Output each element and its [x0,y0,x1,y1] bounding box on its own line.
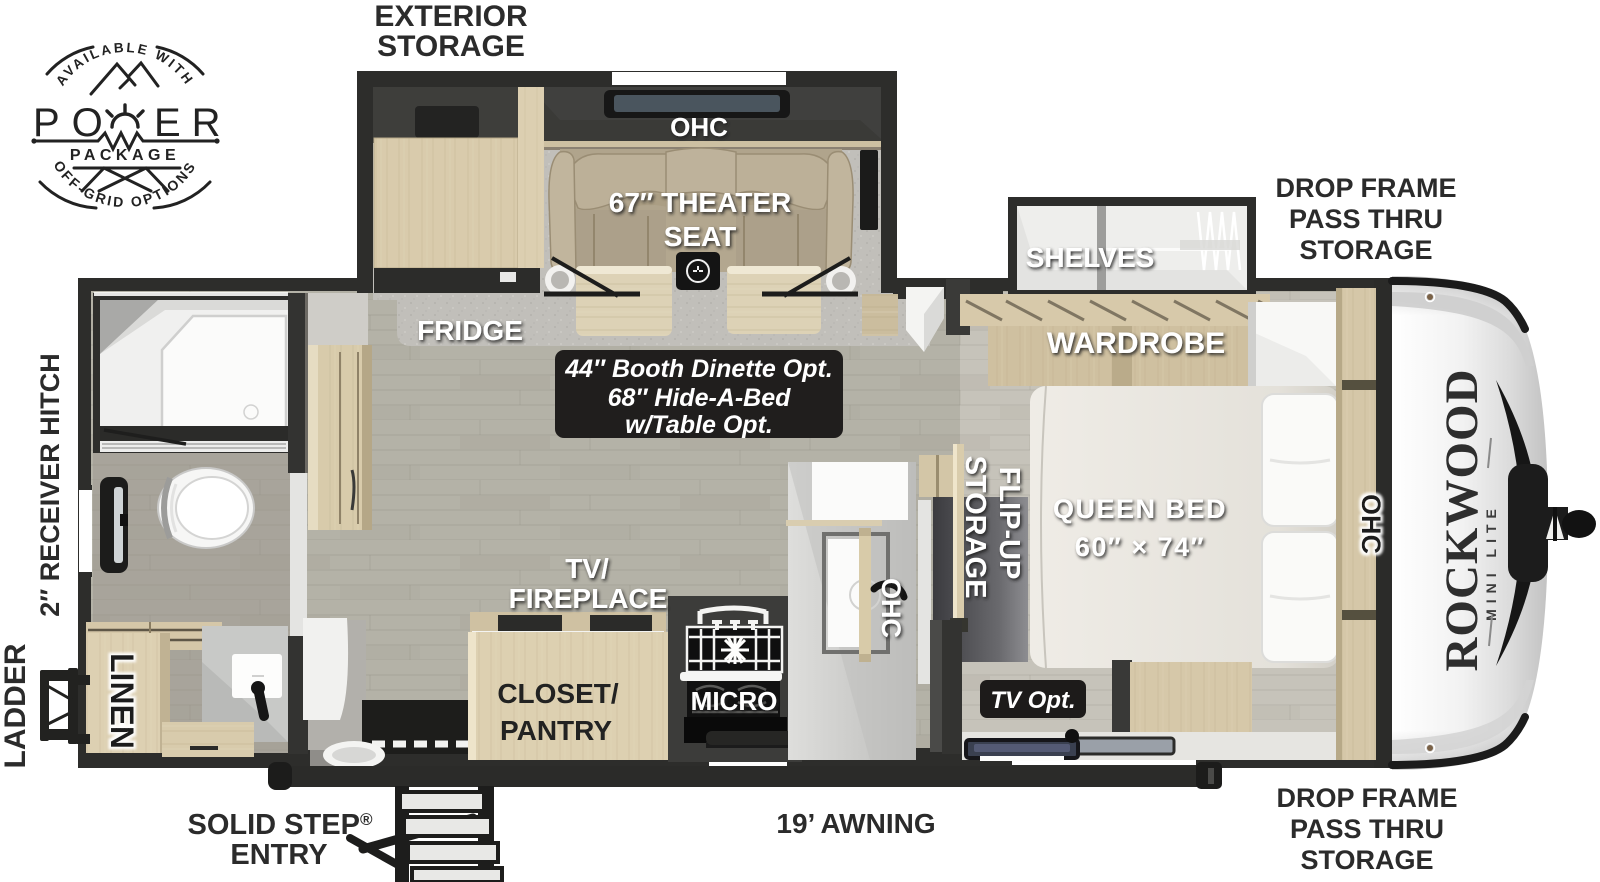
svg-text:TV/: TV/ [565,553,609,584]
svg-text:CLOSET/: CLOSET/ [497,678,619,709]
svg-text:EXTERIOR: EXTERIOR [374,0,528,33]
svg-text:MINI LITE: MINI LITE [1483,503,1499,621]
svg-text:STORAGE: STORAGE [1299,235,1432,265]
svg-text:MICRO: MICRO [691,686,778,716]
svg-text:SHELVES: SHELVES [1026,242,1155,273]
svg-text:68″ Hide-A-Bed: 68″ Hide-A-Bed [608,384,792,412]
svg-text:SEAT: SEAT [664,221,737,252]
svg-text:OHC: OHC [670,112,728,142]
svg-text:DROP FRAME: DROP FRAME [1275,173,1456,203]
svg-text:19’ AWNING: 19’ AWNING [776,808,935,839]
svg-text:QUEEN BED: QUEEN BED [1053,494,1227,524]
svg-text:2″ RECEIVER HITCH: 2″ RECEIVER HITCH [35,353,65,616]
svg-text:ENTRY: ENTRY [230,839,327,871]
svg-text:FLIP-UP: FLIP-UP [993,467,1025,580]
svg-text:STORAGE: STORAGE [377,30,525,63]
svg-text:STORAGE: STORAGE [959,456,991,599]
svg-text:WARDROBE: WARDROBE [1047,327,1225,360]
svg-text:ER: ER [154,101,232,145]
svg-text:PACKAGE: PACKAGE [70,147,180,164]
svg-text:60″ × 74″: 60″ × 74″ [1075,532,1205,562]
svg-text:44″ Booth Dinette Opt.: 44″ Booth Dinette Opt. [564,355,833,383]
svg-text:PASS THRU: PASS THRU [1290,814,1444,844]
svg-text:SOLID STEP®: SOLID STEP® [188,809,373,841]
svg-text:OHC: OHC [876,578,906,638]
svg-text:ROCKWOOD: ROCKWOOD [1436,368,1488,671]
svg-text:LINEN: LINEN [104,653,140,749]
svg-text:LADDER: LADDER [0,643,32,768]
svg-text:STORAGE: STORAGE [1300,845,1433,875]
svg-text:PANTRY: PANTRY [500,715,612,746]
svg-text:PO: PO [33,101,115,145]
svg-text:TV Opt.: TV Opt. [990,687,1075,714]
svg-text:PASS THRU: PASS THRU [1289,204,1443,234]
svg-text:w/Table Opt.: w/Table Opt. [625,411,773,439]
svg-text:DROP FRAME: DROP FRAME [1276,783,1457,813]
svg-text:FIREPLACE: FIREPLACE [509,583,668,614]
svg-text:67″ THEATER: 67″ THEATER [609,187,791,218]
svg-text:OHC: OHC [1356,494,1386,554]
svg-text:FRIDGE: FRIDGE [417,315,523,346]
